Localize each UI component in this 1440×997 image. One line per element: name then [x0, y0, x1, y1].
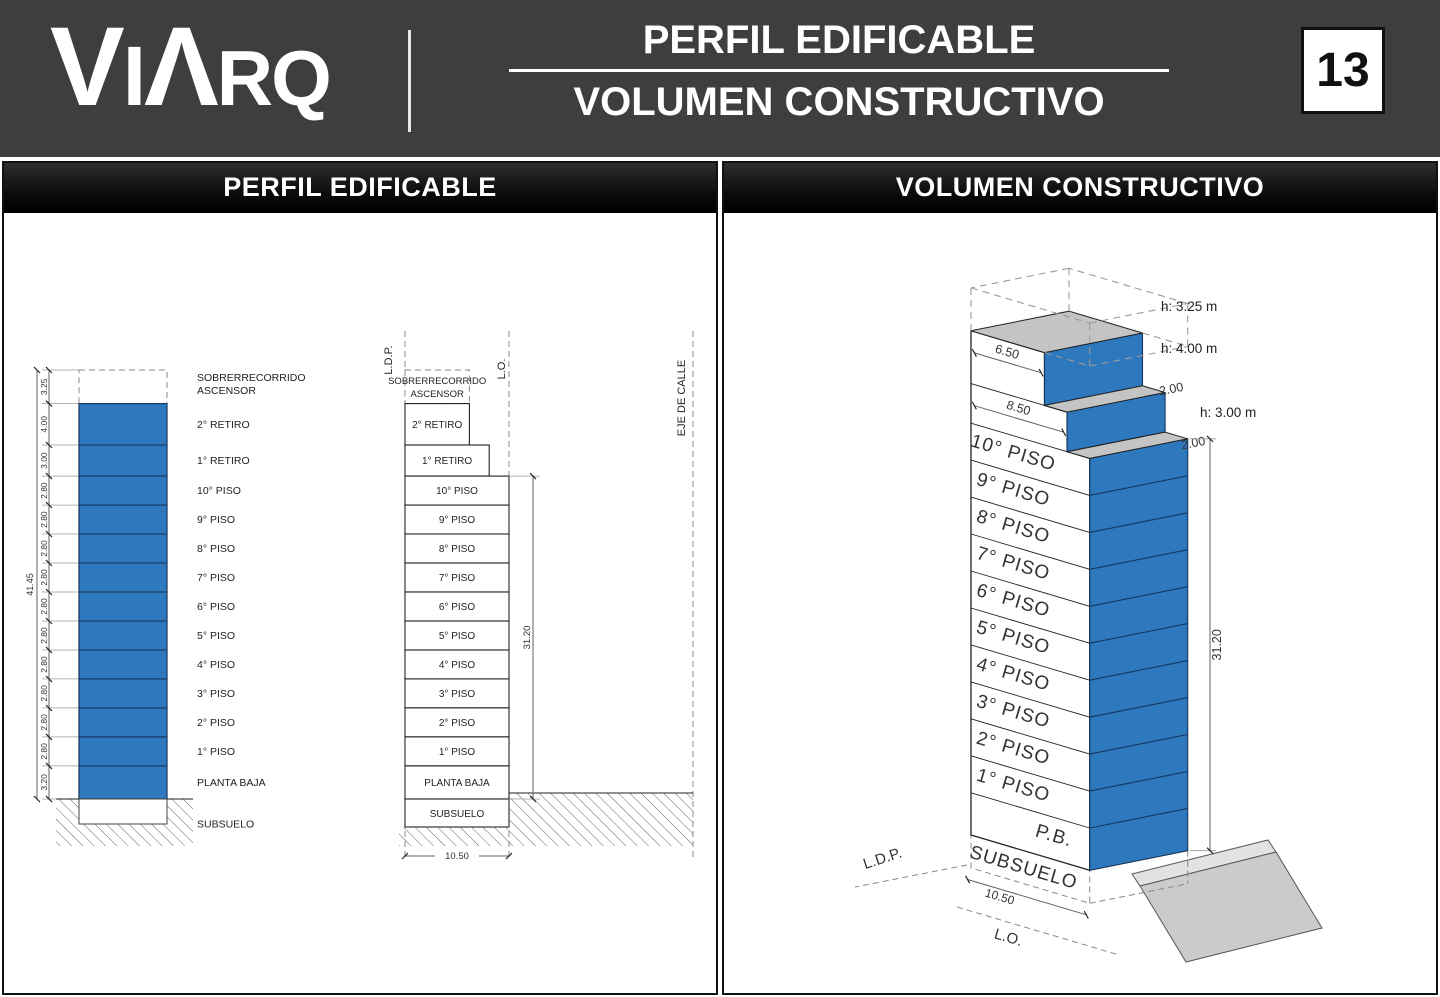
profile-dimension-chain: 41.453.254.003.002.802.802.802.802.802.8…: [25, 367, 79, 802]
svg-text:1° PISO: 1° PISO: [439, 747, 475, 758]
svg-text:SOBRERRECORRIDO: SOBRERRECORRIDO: [388, 376, 486, 387]
profile-building: [56, 370, 193, 846]
svg-text:1° RETIRO: 1° RETIRO: [422, 456, 472, 467]
svg-text:10° PISO: 10° PISO: [436, 486, 478, 497]
svg-text:10° PISO: 10° PISO: [197, 485, 241, 497]
svg-text:6° PISO: 6° PISO: [197, 601, 235, 613]
svg-text:ASCENSOR: ASCENSOR: [197, 385, 256, 397]
svg-text:2° PISO: 2° PISO: [439, 718, 475, 729]
page-title-line1: PERFIL EDIFICABLE: [505, 18, 1173, 63]
svg-text:SUBSUELO: SUBSUELO: [197, 819, 254, 831]
logo-letter: Λ: [144, 8, 217, 126]
profile-labels: SOBRERRECORRIDOASCENSOR2° RETIRO1° RETIR…: [197, 372, 306, 831]
svg-text:2.80: 2.80: [39, 743, 49, 760]
right-panel-content: 10° PISO9° PISO8° PISO7° PISO6° PISO5° P…: [724, 213, 1436, 994]
setback-building: 2° RETIRO1° RETIRO10° PISO9° PISO8° PISO…: [388, 370, 693, 846]
svg-text:L.D.P.: L.D.P.: [861, 844, 904, 872]
svg-text:2° PISO: 2° PISO: [197, 717, 235, 729]
volumen-constructivo-drawing: 10° PISO9° PISO8° PISO7° PISO6° PISO5° P…: [724, 213, 1436, 994]
svg-text:5° PISO: 5° PISO: [439, 631, 475, 642]
svg-text:2.80: 2.80: [39, 714, 49, 731]
svg-text:7° PISO: 7° PISO: [439, 573, 475, 584]
svg-text:5° PISO: 5° PISO: [197, 630, 235, 642]
svg-text:h: 3.25 m: h: 3.25 m: [1161, 299, 1217, 314]
svg-text:2.80: 2.80: [39, 627, 49, 644]
left-panel-title: PERFIL EDIFICABLE: [4, 163, 716, 213]
street-ramp: [1132, 840, 1322, 962]
svg-text:L.D.P.: L.D.P.: [383, 345, 395, 374]
svg-text:2.80: 2.80: [39, 598, 49, 615]
svg-text:2° RETIRO: 2° RETIRO: [412, 420, 462, 431]
svg-text:ASCENSOR: ASCENSOR: [411, 389, 464, 400]
logo-letter: V: [50, 8, 123, 126]
svg-text:7° PISO: 7° PISO: [197, 572, 235, 584]
svg-text:EJE DE CALLE: EJE DE CALLE: [676, 360, 688, 436]
svg-text:3° PISO: 3° PISO: [197, 688, 235, 700]
svg-text:h: 4.00 m: h: 4.00 m: [1161, 341, 1217, 356]
svg-text:2° RETIRO: 2° RETIRO: [197, 419, 250, 431]
page-header: VIΛRQ PERFIL EDIFICABLE VOLUMEN CONSTRUC…: [0, 0, 1440, 157]
logo-letter: Q: [271, 38, 330, 120]
svg-text:3.00: 3.00: [39, 452, 49, 469]
svg-text:31.20: 31.20: [1210, 629, 1224, 660]
viarq-logo: VIΛRQ: [50, 8, 330, 126]
svg-text:9° PISO: 9° PISO: [439, 515, 475, 526]
svg-text:3.25: 3.25: [39, 378, 49, 395]
svg-text:2.80: 2.80: [39, 569, 49, 586]
perfil-edificable-drawing: 41.453.254.003.002.802.802.802.802.802.8…: [4, 213, 716, 994]
right-panel-title: VOLUMEN CONSTRUCTIVO: [724, 163, 1436, 213]
svg-text:8° PISO: 8° PISO: [197, 543, 235, 555]
svg-text:PLANTA BAJA: PLANTA BAJA: [197, 777, 266, 789]
svg-text:6° PISO: 6° PISO: [439, 602, 475, 613]
perfil-edificable-panel: PERFIL EDIFICABLE 41.453.254.003.002.802…: [2, 161, 718, 995]
svg-text:L.O.: L.O.: [496, 359, 508, 380]
svg-text:PLANTA BAJA: PLANTA BAJA: [424, 778, 490, 789]
svg-text:2.80: 2.80: [39, 656, 49, 673]
logo-letter: I: [123, 32, 144, 120]
left-panel-content: 41.453.254.003.002.802.802.802.802.802.8…: [4, 213, 716, 994]
svg-text:10.50: 10.50: [983, 886, 1016, 908]
svg-text:3.20: 3.20: [39, 774, 49, 791]
title-divider-rule: [509, 69, 1169, 72]
volumen-constructivo-panel: VOLUMEN CONSTRUCTIVO 10° PISO9° PISO8° P…: [722, 161, 1438, 995]
svg-text:2.80: 2.80: [39, 511, 49, 528]
svg-text:4° PISO: 4° PISO: [439, 660, 475, 671]
svg-text:1° PISO: 1° PISO: [197, 746, 235, 758]
svg-text:2.00: 2.00: [1158, 380, 1185, 399]
svg-text:SOBRERRECORRIDO: SOBRERRECORRIDO: [197, 372, 306, 384]
page-number-badge: 13: [1301, 27, 1385, 114]
svg-text:1° RETIRO: 1° RETIRO: [197, 455, 250, 467]
svg-text:2.00: 2.00: [1180, 434, 1207, 453]
svg-text:41.45: 41.45: [25, 573, 35, 596]
svg-text:10.50: 10.50: [445, 851, 469, 862]
page-title: PERFIL EDIFICABLE VOLUMEN CONSTRUCTIVO: [505, 18, 1173, 125]
svg-text:2.80: 2.80: [39, 540, 49, 557]
svg-text:SUBSUELO: SUBSUELO: [430, 809, 485, 820]
svg-text:8° PISO: 8° PISO: [439, 544, 475, 555]
svg-text:L.O.: L.O.: [992, 925, 1024, 949]
logo-divider: [408, 30, 411, 132]
svg-text:9° PISO: 9° PISO: [197, 514, 235, 526]
svg-text:h: 3.00 m: h: 3.00 m: [1200, 405, 1256, 420]
svg-text:4.00: 4.00: [39, 416, 49, 433]
logo-letter: R: [217, 38, 271, 120]
svg-text:4° PISO: 4° PISO: [197, 659, 235, 671]
svg-text:31.20: 31.20: [522, 626, 533, 650]
svg-text:2.80: 2.80: [39, 482, 49, 499]
svg-text:3° PISO: 3° PISO: [439, 689, 475, 700]
page-title-line2: VOLUMEN CONSTRUCTIVO: [505, 80, 1173, 125]
svg-text:2.80: 2.80: [39, 685, 49, 702]
